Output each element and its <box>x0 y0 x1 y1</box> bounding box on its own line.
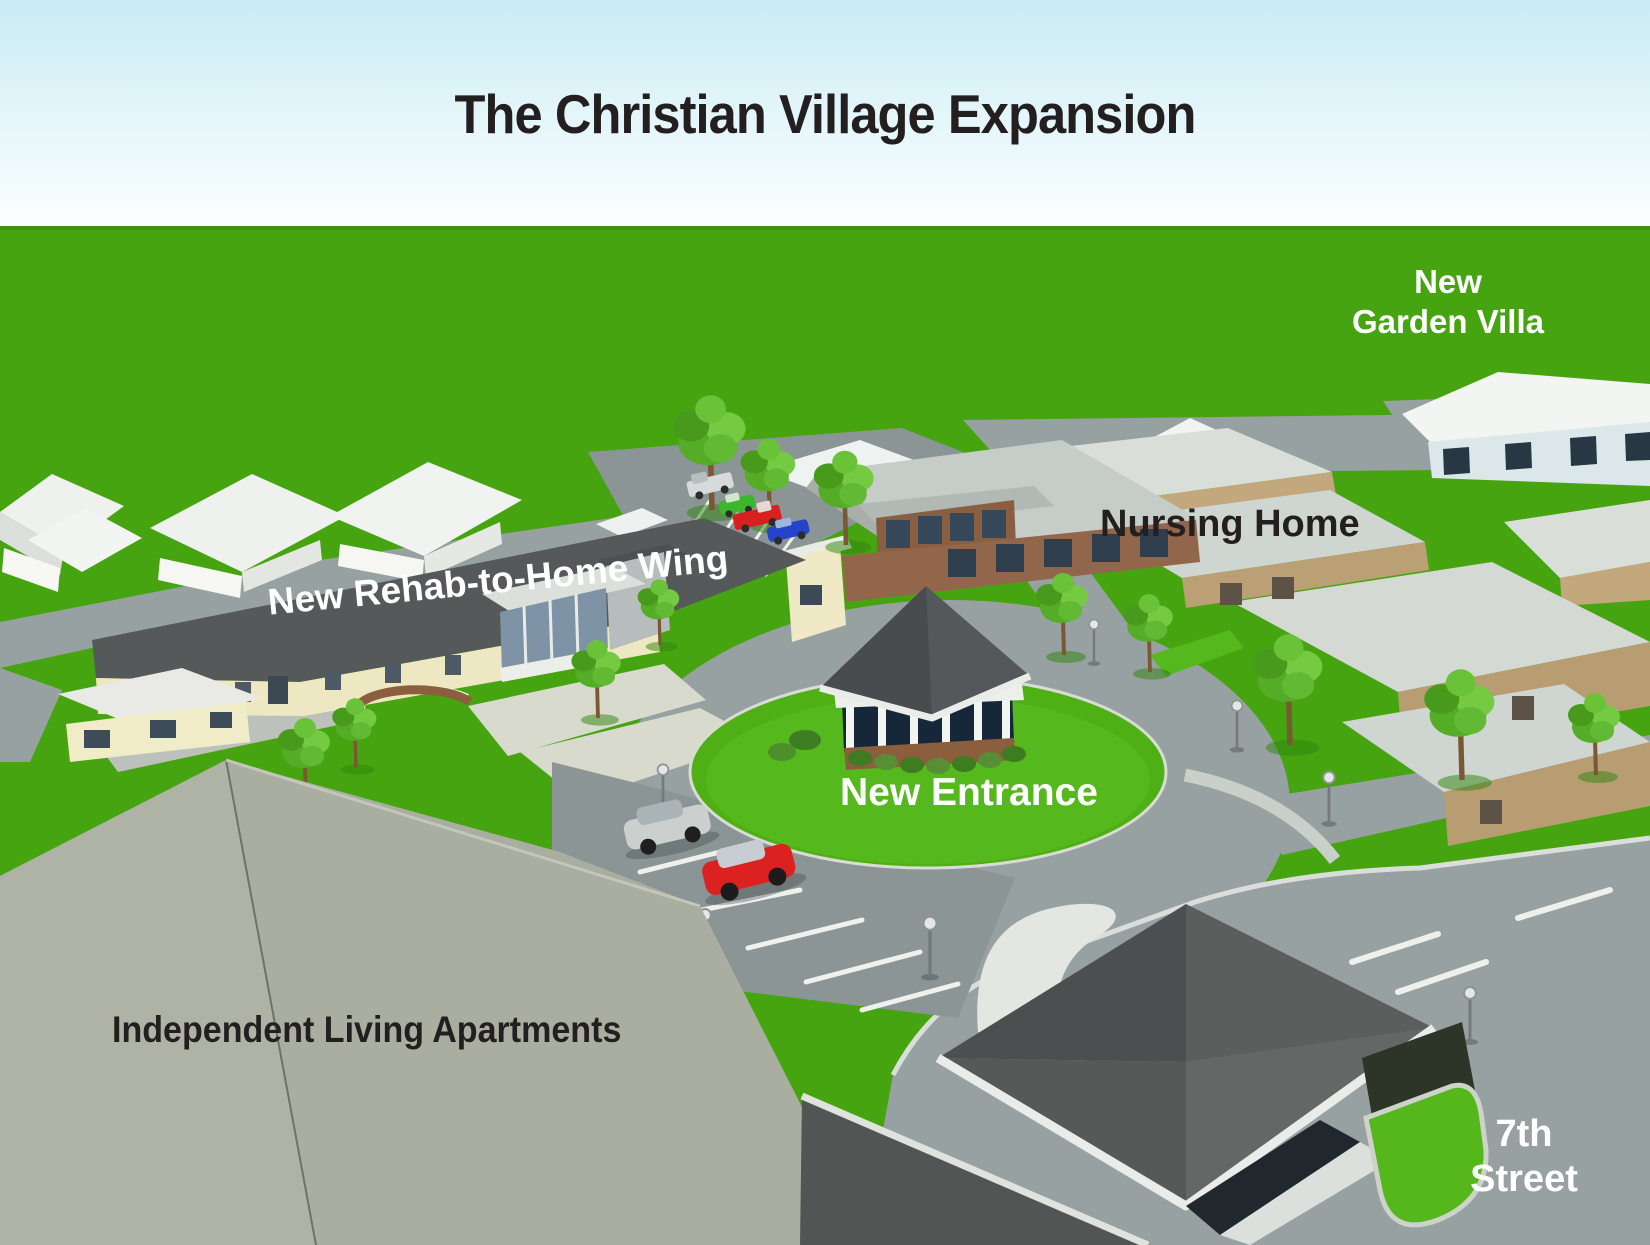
pavilion-column <box>1002 695 1010 745</box>
clerestory-window <box>886 520 910 548</box>
rehab-window <box>445 655 461 675</box>
main-building-window <box>996 544 1024 572</box>
label-nursing-home: Nursing Home <box>1100 504 1360 546</box>
nursing-window <box>1512 696 1534 720</box>
label-independent-living: Independent Living Apartments <box>112 1010 621 1051</box>
atrium-mullion <box>550 600 552 664</box>
atrium-mullion <box>576 594 578 658</box>
bush <box>952 756 976 772</box>
label-garden-villa-line2: Garden Villa <box>1352 302 1544 342</box>
label-7th-street-line1: 7th <box>1470 1112 1578 1157</box>
campus-expansion-rendering: The Christian Village Expansion New Gard… <box>0 0 1650 1245</box>
street-median-island <box>1362 1022 1486 1225</box>
bush <box>874 754 898 770</box>
label-7th-street: 7th Street <box>1470 1112 1578 1202</box>
pavilion-column <box>974 696 982 747</box>
rehab-door <box>268 676 288 704</box>
bush <box>848 750 872 766</box>
annex-window <box>800 585 822 605</box>
scene-canvas <box>0 0 1650 1245</box>
bush <box>1002 746 1026 762</box>
atrium-mullion <box>524 606 526 668</box>
clerestory-window <box>918 516 942 544</box>
label-garden-villa-line1: New <box>1352 262 1544 302</box>
rehab-window <box>385 663 401 683</box>
nursing-window <box>1220 583 1242 605</box>
pavilion-column <box>846 700 854 754</box>
page-title: The Christian Village Expansion <box>455 84 1196 145</box>
main-building-window <box>1044 539 1072 567</box>
bush <box>789 730 821 750</box>
villa-window <box>1625 432 1650 461</box>
bush <box>978 752 1002 768</box>
horizon-line <box>0 226 1650 230</box>
duplex-window <box>210 712 232 728</box>
nursing-window <box>1480 800 1502 824</box>
clerestory-window <box>950 513 974 541</box>
villa-window <box>1570 436 1597 466</box>
main-building-window <box>948 549 976 577</box>
villa-window <box>1443 447 1470 475</box>
duplex-window <box>84 730 110 748</box>
label-new-entrance: New Entrance <box>840 772 1098 815</box>
label-garden-villa: New Garden Villa <box>1352 262 1544 342</box>
rehab-window <box>325 670 341 690</box>
nursing-window <box>1272 577 1294 599</box>
bush <box>768 743 796 761</box>
label-7th-street-line2: Street <box>1470 1157 1578 1202</box>
duplex-window <box>150 720 176 738</box>
villa-window <box>1505 442 1532 470</box>
clerestory-window <box>982 510 1006 538</box>
